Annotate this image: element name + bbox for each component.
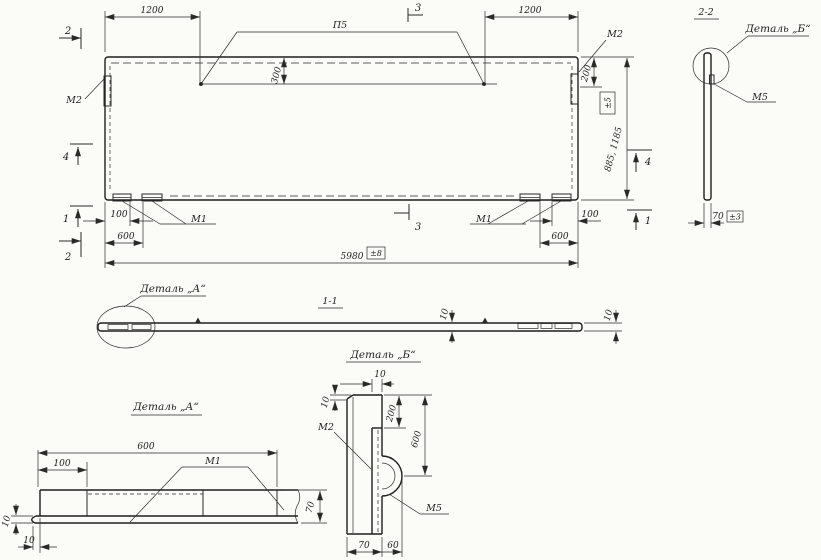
dim-600-right: 600 xyxy=(540,232,578,243)
detail-b-dim-10side-value: 10 xyxy=(320,395,333,409)
mark-1-right: 1 xyxy=(645,216,651,227)
dim-100-left: 100 xyxy=(83,210,153,221)
detail-b-dim-60-value: 60 xyxy=(387,541,399,551)
detail-b-callout-label: Деталь „Б“ xyxy=(744,23,811,35)
section-mark-2-bottom: 2 xyxy=(59,232,81,263)
detail-b-m5-label: М5 xyxy=(425,503,442,514)
dim-10-end-value: 10 xyxy=(603,308,616,322)
dim-100-left-value: 100 xyxy=(110,210,127,220)
m2-label-right: М2 xyxy=(606,29,623,40)
mark-4-left: 4 xyxy=(62,152,69,163)
mark-4-right: 4 xyxy=(644,157,651,168)
detail-a: Деталь „А“ М1 100 xyxy=(1,401,327,553)
dim-height-value: 885, 1185 xyxy=(603,126,625,173)
bar-weld-b xyxy=(541,324,552,329)
section-2-2: 2-2 Деталь „Б“ М5 70 ±3 xyxy=(688,7,811,228)
detail-a-dim-600: 600 xyxy=(38,442,277,487)
weld-tick-right xyxy=(482,318,488,324)
callout-p5: П5 xyxy=(199,20,497,86)
mark-2-top: 2 xyxy=(64,26,71,37)
section-1-1: 1-1 Деталь „А“ 10 10 xyxy=(97,283,622,348)
detail-b-callout: Деталь „Б“ xyxy=(727,23,811,53)
mark-3-top: 3 xyxy=(415,3,421,14)
m1-label-right: М1 xyxy=(475,214,492,225)
dim-width-tol-value: ±8 xyxy=(370,249,382,258)
detail-b-dim-10-top: 10 xyxy=(340,370,394,392)
drawing-sheet: 1200 1200 П5 300 3 xyxy=(0,0,821,560)
m2-label-left: М2 xyxy=(65,95,82,106)
detail-a-callout: Деталь „А“ xyxy=(124,283,206,307)
detail-a-dim-10o-value: 10 xyxy=(23,536,35,546)
section-mark-1-left: 1 xyxy=(63,206,93,227)
detail-a-dim-100: 100 xyxy=(38,450,87,487)
m1-label-left: М1 xyxy=(190,214,207,225)
detail-b-m2-leader: М2 xyxy=(317,422,371,469)
dim-1200-left: 1200 xyxy=(105,6,200,82)
detail-a-m1-leader: М1 xyxy=(130,456,284,522)
m2-leader-left: М2 xyxy=(65,79,104,106)
bar-weld-c xyxy=(555,324,572,329)
detail-a-dim-10-thickness: 10 xyxy=(1,504,33,535)
bar-strap-b xyxy=(132,325,151,330)
section-mark-4-right: 4 xyxy=(627,150,652,172)
detail-a-dim-100-value: 100 xyxy=(53,459,70,469)
detail-a-dim-70-value: 70 xyxy=(305,500,318,514)
dim-1200-right: 1200 xyxy=(485,6,578,82)
dim-600-left: 600 xyxy=(105,232,143,243)
detail-b-dim-600-value: 600 xyxy=(410,430,424,449)
dim-200-value: 200 xyxy=(580,64,594,84)
handle-inner-arc xyxy=(382,463,395,489)
detail-b: Деталь „Б“ 10 xyxy=(317,349,449,557)
dim-width: 5980 ±8 xyxy=(105,247,578,263)
m5-label: М5 xyxy=(751,92,768,103)
dim-600-right-value: 600 xyxy=(551,232,568,242)
dim-10-end: 10 xyxy=(584,308,622,344)
detail-a-callout-label: Деталь „А“ xyxy=(139,283,206,295)
dim-1200-left-value: 1200 xyxy=(141,6,164,16)
dim-70-tol-value: ±3 xyxy=(729,213,741,222)
dim-300: 300 xyxy=(270,58,284,85)
detail-b-title: Деталь „Б“ xyxy=(349,349,416,361)
panel-outline xyxy=(105,57,578,200)
section-2-2-title: 2-2 xyxy=(697,7,713,18)
m1-leader-left: М1 xyxy=(122,201,216,225)
dim-1200-right-value: 1200 xyxy=(519,6,542,16)
bar-strap-a xyxy=(108,325,128,330)
engineering-drawing: 1200 1200 П5 300 3 xyxy=(0,0,821,560)
dim-600-left-value: 600 xyxy=(117,232,134,242)
dim-height-tol-value: ±5 xyxy=(604,97,613,109)
section-mark-3-bottom: 3 xyxy=(394,204,421,233)
section-mark-2-top: 2 xyxy=(59,26,81,49)
section-1-1-bar xyxy=(98,323,582,331)
section-2-2-m5-strap xyxy=(710,75,715,84)
detail-a-dim-70: 70 xyxy=(283,490,327,523)
dim-300-value: 300 xyxy=(270,66,284,85)
dim-70-value: 70 xyxy=(712,212,724,222)
section-1-1-title: 1-1 xyxy=(322,296,337,307)
p5-label: П5 xyxy=(332,20,347,31)
break-line xyxy=(295,490,300,523)
dim-100-right: 100 xyxy=(530,210,601,221)
detail-a-dim-10t-value: 10 xyxy=(1,514,14,528)
dim-200: 200 xyxy=(580,58,602,87)
dim-10-mid: 10 xyxy=(439,307,452,343)
detail-b-dims-bottom: 70 60 xyxy=(347,478,402,557)
detail-a-m1-label: М1 xyxy=(204,456,221,467)
detail-b-m5-leader: М5 xyxy=(389,494,449,514)
section-mark-4-left: 4 xyxy=(62,144,93,165)
m1-leader-right: М1 xyxy=(470,201,561,225)
mark-1-left: 1 xyxy=(63,214,69,225)
detail-a-dim-600-value: 600 xyxy=(137,442,154,452)
section-mark-3-top: 3 xyxy=(408,3,423,22)
main-view: 1200 1200 П5 300 3 xyxy=(59,3,652,268)
dim-100-right-value: 100 xyxy=(581,210,598,220)
detail-b-dim-600: 600 xyxy=(404,396,432,476)
dim-width-value: 5980 xyxy=(341,252,364,262)
dim-70-section: 70 ±3 xyxy=(688,203,743,228)
mark-2-bottom: 2 xyxy=(64,252,71,263)
bar-weld-a xyxy=(518,324,538,329)
dim-10-mid-value: 10 xyxy=(439,307,452,321)
detail-b-dim-70-value: 70 xyxy=(358,541,370,551)
detail-b-dim-10top-value: 10 xyxy=(374,370,386,380)
detail-b-m2-label: М2 xyxy=(317,422,334,433)
handle-outer-arc xyxy=(382,456,402,496)
detail-a-circle xyxy=(97,306,155,348)
detail-a-title: Деталь „А“ xyxy=(132,401,199,413)
section-mark-1-right: 1 xyxy=(627,210,652,230)
mark-3-bottom: 3 xyxy=(415,222,421,233)
m5-leader: М5 xyxy=(714,84,776,103)
detail-b-dim-200-value: 200 xyxy=(385,404,399,424)
detail-a-part xyxy=(32,490,300,523)
weld-tick-left xyxy=(195,318,201,324)
